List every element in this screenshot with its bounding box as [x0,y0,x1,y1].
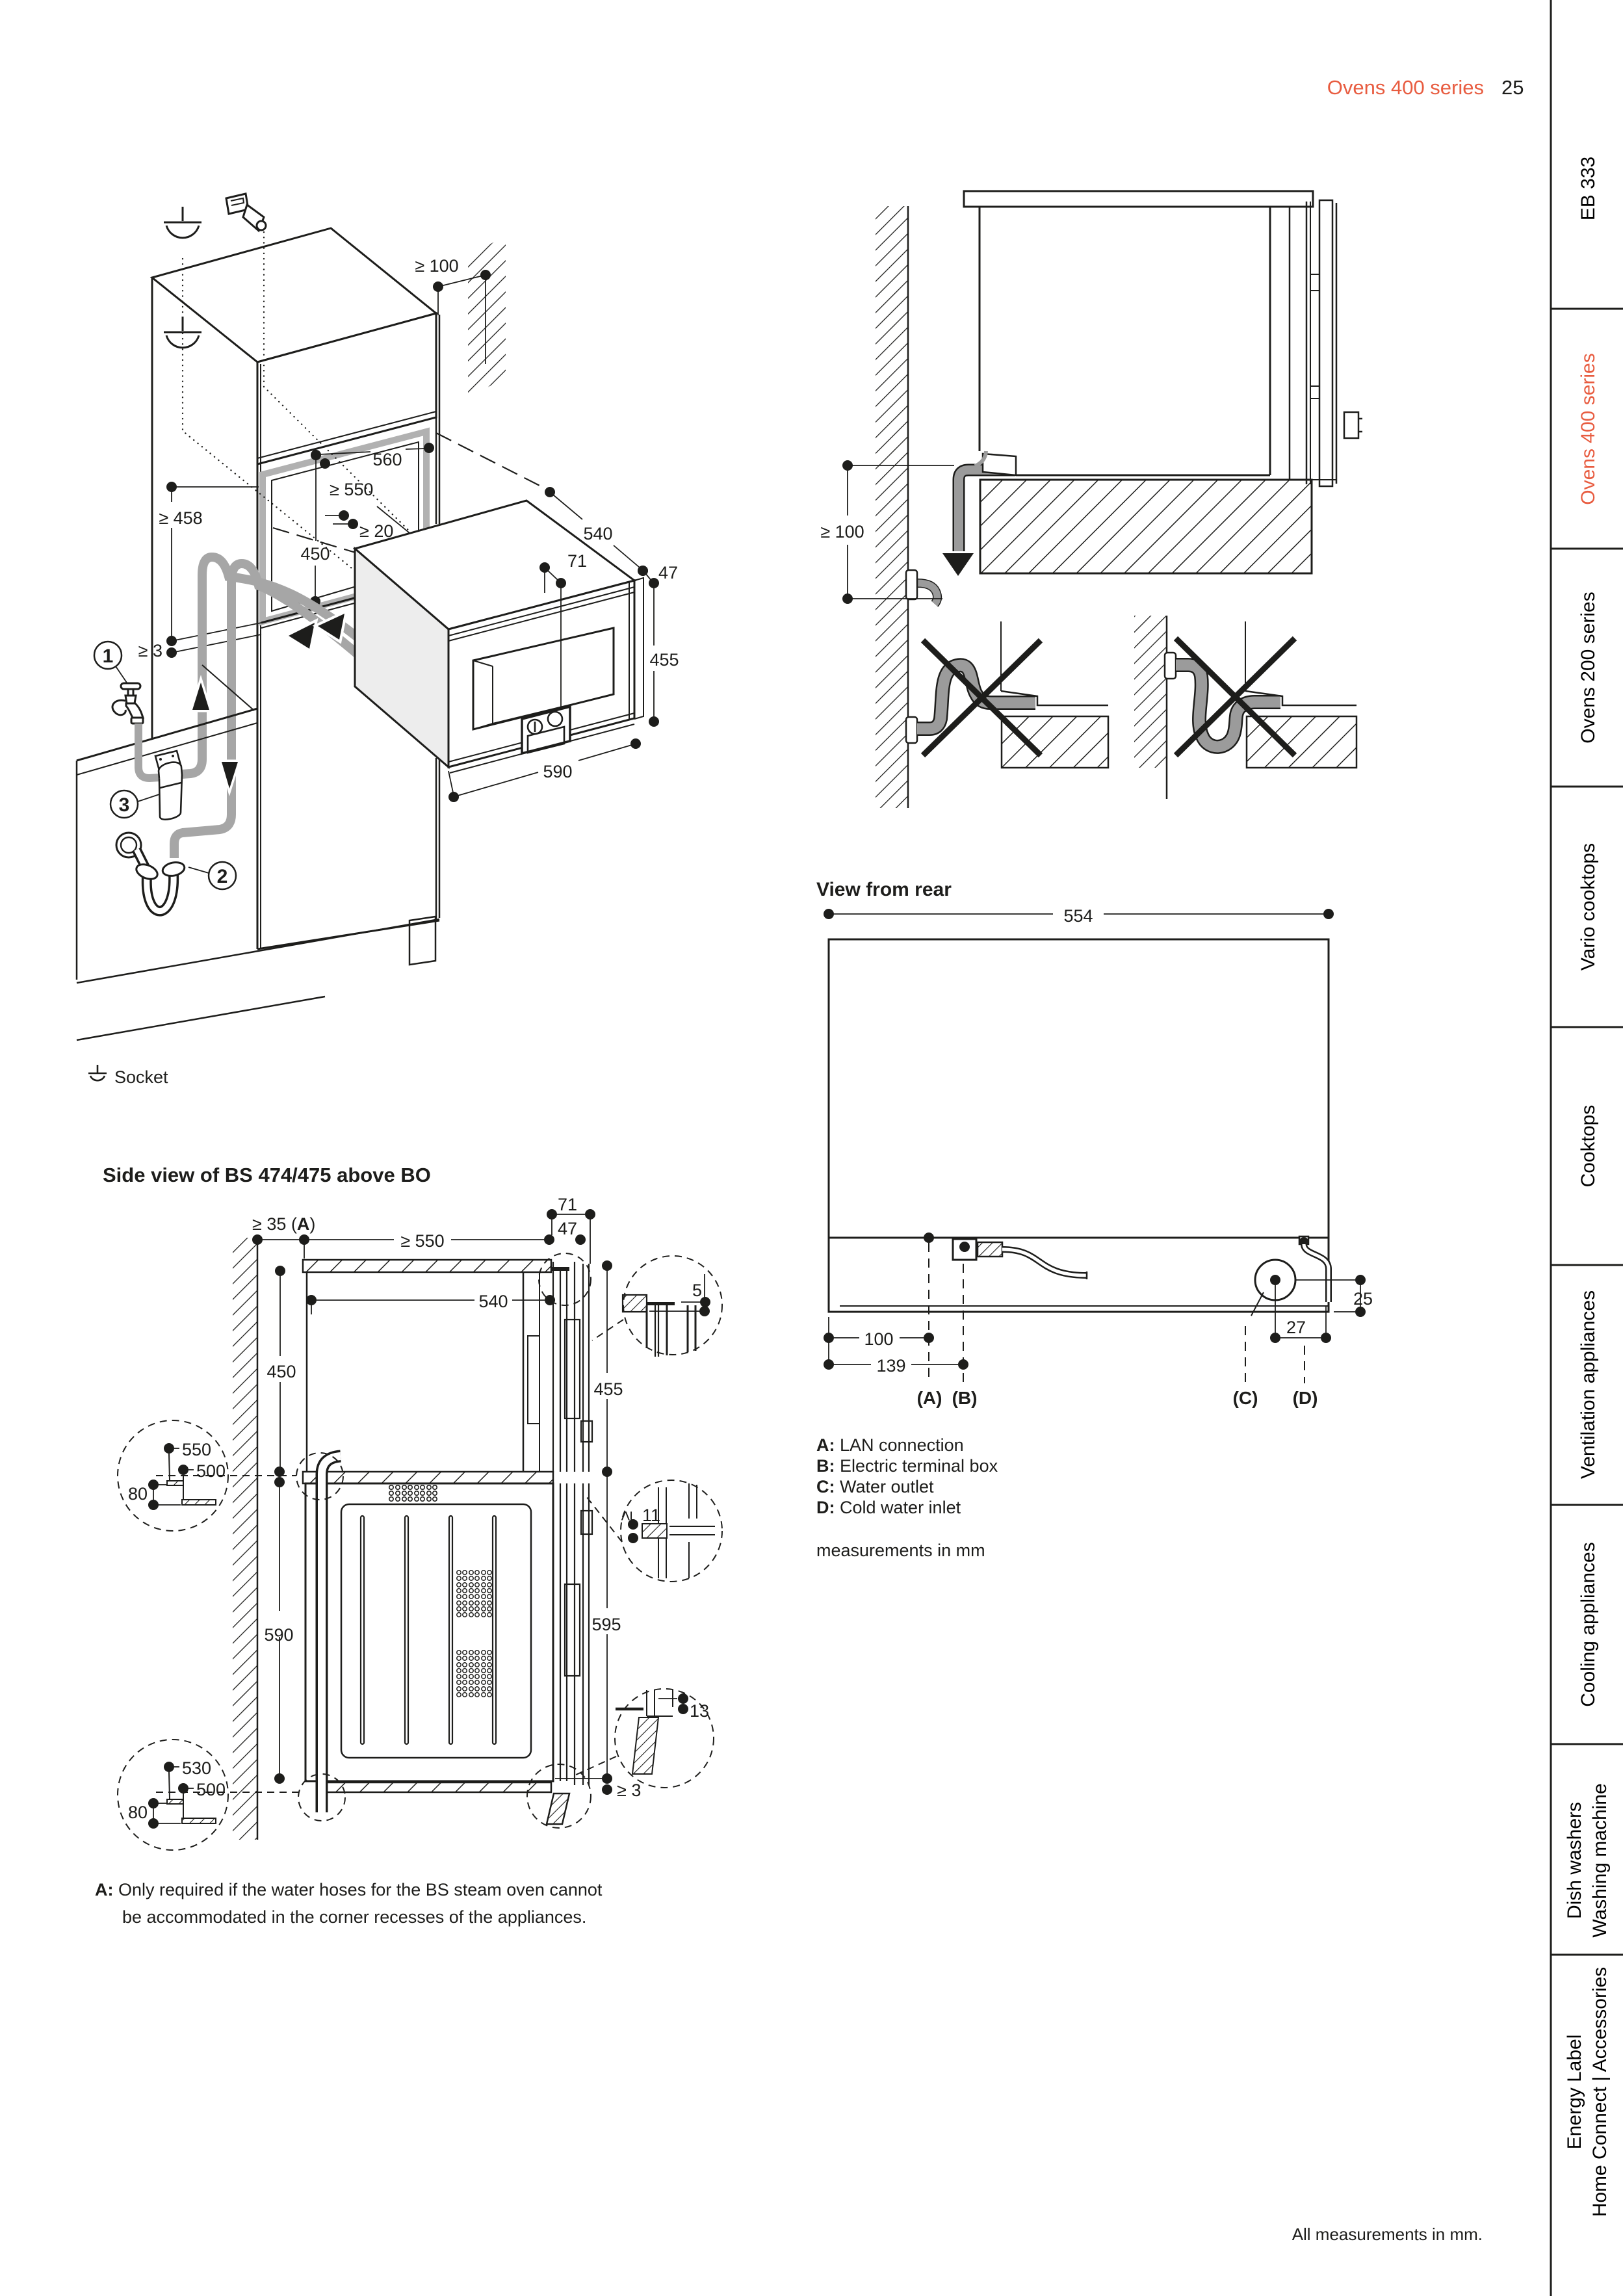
svg-text:455: 455 [593,1379,623,1399]
svg-text:550: 550 [182,1440,211,1459]
svg-text:2: 2 [217,866,228,887]
svg-text:≥ 35 (A): ≥ 35 (A) [252,1214,315,1234]
svg-text:11: 11 [642,1506,660,1525]
svg-text:Home Connect | Accessories: Home Connect | Accessories [1589,1967,1611,2217]
svg-text:13: 13 [690,1701,709,1721]
svg-text:EB 333: EB 333 [1578,157,1599,220]
svg-text:3: 3 [119,794,130,816]
svg-text:530: 530 [182,1758,211,1778]
svg-text:Cooling appliances: Cooling appliances [1578,1542,1599,1707]
svg-text:47: 47 [558,1219,577,1238]
svg-text:C: Water outlet: C: Water outlet [816,1477,934,1496]
svg-text:554: 554 [1063,906,1093,926]
svg-text:455: 455 [649,650,679,670]
svg-text:A: Only required if the water: A: Only required if the water hoses for … [95,1880,603,1899]
svg-text:500: 500 [196,1461,226,1481]
svg-text:Cooktops: Cooktops [1578,1105,1599,1188]
svg-text:500: 500 [196,1780,226,1799]
svg-text:≥ 20: ≥ 20 [359,521,393,541]
svg-text:Ovens 400 series: Ovens 400 series [1327,76,1484,99]
svg-text:Vario cooktops: Vario cooktops [1578,843,1599,971]
svg-text:All measurements in mm.: All measurements in mm. [1292,2224,1483,2244]
svg-text:25: 25 [1501,76,1524,99]
svg-text:590: 590 [264,1625,293,1645]
svg-text:5: 5 [692,1281,702,1300]
svg-text:47: 47 [658,563,678,582]
svg-text:Ovens 200 series: Ovens 200 series [1578,592,1599,743]
svg-text:Ventilation appliances: Ventilation appliances [1578,1290,1599,1479]
svg-text:80: 80 [128,1803,148,1822]
svg-text:measurements in mm: measurements in mm [816,1541,985,1560]
svg-text:Energy Label: Energy Label [1564,2035,1585,2150]
svg-text:Washing machine: Washing machine [1589,1783,1611,1937]
svg-text:100: 100 [864,1329,893,1349]
svg-text:≥ 100: ≥ 100 [415,256,458,276]
svg-text:D: Cold water inlet: D: Cold water inlet [816,1498,961,1517]
svg-text:(C): (C) [1233,1388,1258,1408]
svg-text:450: 450 [300,544,330,564]
svg-text:(D): (D) [1293,1388,1318,1408]
svg-text:80: 80 [128,1484,148,1504]
svg-text:450: 450 [266,1362,296,1381]
svg-text:540: 540 [583,524,612,543]
svg-text:≥ 3: ≥ 3 [617,1781,641,1800]
svg-text:≥ 3: ≥ 3 [138,641,162,660]
svg-text:≥: ≥ [616,1511,636,1521]
svg-text:≥ 100: ≥ 100 [820,522,864,541]
svg-text:Side view of BS 474/475 above: Side view of BS 474/475 above BO [103,1164,431,1186]
svg-text:(A): (A) [917,1388,942,1408]
svg-text:71: 71 [558,1195,577,1214]
svg-text:71: 71 [567,551,587,571]
svg-text:540: 540 [478,1292,508,1311]
svg-text:≥ 550: ≥ 550 [330,480,373,499]
svg-text:be accommodated in the corner: be accommodated in the corner recesses o… [122,1907,586,1927]
svg-text:25: 25 [1353,1289,1373,1309]
svg-text:B: Electric terminal box: B: Electric terminal box [816,1456,998,1476]
svg-text:139: 139 [876,1356,905,1376]
svg-text:Socket: Socket [114,1067,168,1087]
svg-text:Ovens 400 series: Ovens 400 series [1578,353,1599,504]
svg-text:≥ 458: ≥ 458 [159,508,202,528]
svg-text:560: 560 [372,450,402,469]
svg-text:A: LAN connection: A: LAN connection [816,1435,964,1455]
svg-text:Dish washers: Dish washers [1564,1802,1585,1919]
svg-text:≥ 550: ≥ 550 [400,1231,444,1251]
svg-text:27: 27 [1286,1318,1306,1337]
svg-text:590: 590 [543,762,572,781]
svg-text:View from rear: View from rear [816,879,952,900]
svg-text:595: 595 [591,1615,621,1634]
svg-text:(B): (B) [952,1388,978,1408]
svg-text:1: 1 [103,646,114,667]
